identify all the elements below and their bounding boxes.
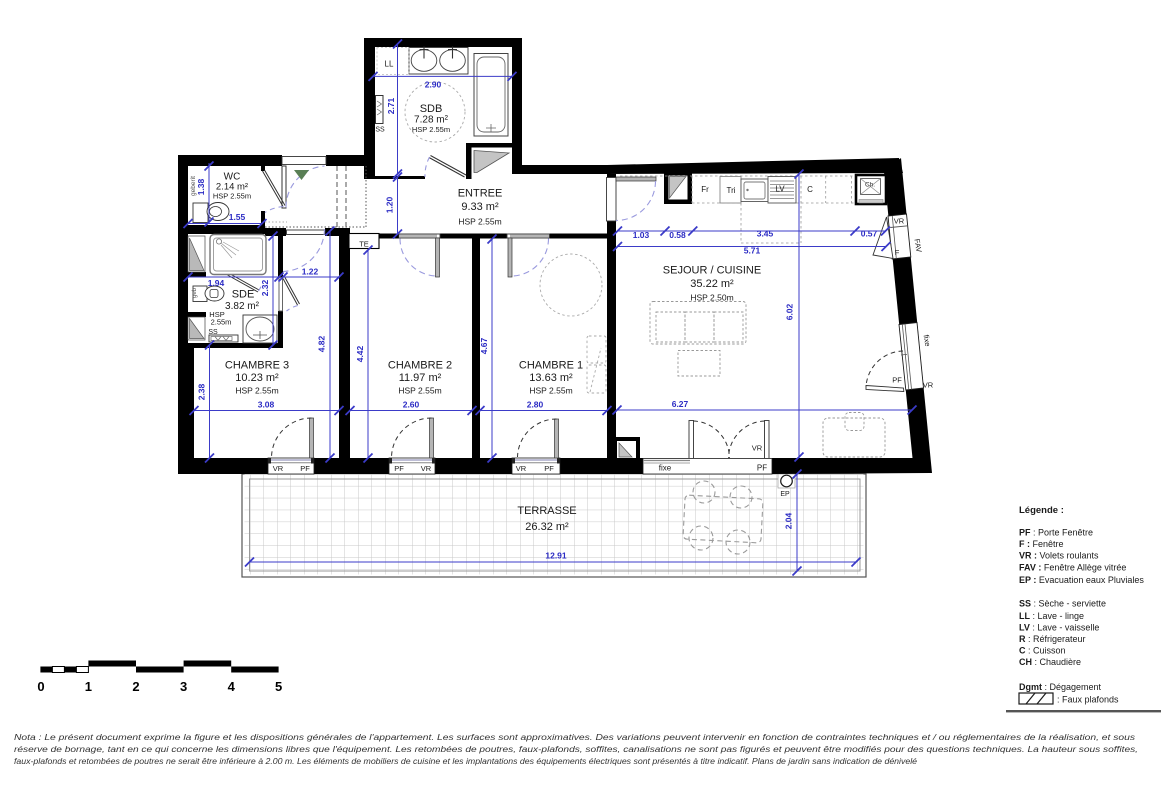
svg-text:2.60: 2.60 [403, 400, 420, 410]
svg-text:SDB: SDB [420, 103, 443, 115]
svg-text:FAV : Fenêtre Allège vitrée: FAV : Fenêtre Allège vitrée [1019, 563, 1126, 573]
svg-text:TE: TE [359, 240, 369, 249]
svg-text:HSP 2.55m: HSP 2.55m [529, 386, 572, 396]
svg-text:C: C [807, 185, 813, 194]
svg-text:Ch.: Ch. [865, 182, 875, 189]
svg-text:SS : Sèche - serviette: SS : Sèche - serviette [1019, 599, 1106, 609]
svg-text:SEJOUR / CUISINE: SEJOUR / CUISINE [663, 265, 761, 277]
svg-text:3.08: 3.08 [258, 400, 275, 410]
svg-text:F: F [895, 248, 900, 257]
svg-text:4.67: 4.67 [479, 337, 489, 354]
svg-text:2.71: 2.71 [386, 97, 396, 114]
svg-text:: Faux plafonds: : Faux plafonds [1057, 695, 1119, 705]
svg-text:HSP 2.55m: HSP 2.55m [398, 386, 441, 396]
svg-text:HSP 2.55m: HSP 2.55m [458, 217, 501, 227]
svg-text:SS: SS [375, 127, 385, 134]
svg-text:10.23 m²: 10.23 m² [235, 372, 279, 384]
svg-text:3.82 m²: 3.82 m² [225, 301, 260, 312]
svg-text:LL: LL [385, 60, 394, 69]
svg-text:PF: PF [544, 464, 554, 473]
svg-text:Dgmt : Dégagement: Dgmt : Dégagement [1019, 682, 1102, 692]
svg-text:4.82: 4.82 [317, 335, 327, 352]
svg-text:2.90: 2.90 [425, 80, 442, 90]
svg-text:F : Fenêtre: F : Fenêtre [1019, 539, 1064, 549]
svg-text:HSP 2.55m: HSP 2.55m [235, 386, 278, 396]
svg-text:SS: SS [208, 329, 218, 336]
svg-text:faux-plafonds et retombées de: faux-plafonds et retombées de poutres ne… [14, 756, 917, 766]
svg-text:EP : Evacuation eaux Pluviales: EP : Evacuation eaux Pluviales [1019, 575, 1144, 585]
svg-text:CHAMBRE 2: CHAMBRE 2 [388, 360, 452, 372]
svg-text:PF : Porte Fenêtre: PF : Porte Fenêtre [1019, 528, 1093, 538]
svg-text:Nota : Le présent document exp: Nota : Le présent document exprime la fi… [14, 732, 1136, 742]
svg-text:2.80: 2.80 [527, 400, 544, 410]
svg-text:1.55: 1.55 [229, 212, 246, 222]
svg-text:2.04: 2.04 [784, 512, 794, 529]
svg-text:LL : Lave - linge: LL : Lave - linge [1019, 611, 1084, 621]
svg-text:9.33 m²: 9.33 m² [461, 201, 499, 213]
svg-text:LV : Lave - vaisselle: LV : Lave - vaisselle [1019, 623, 1099, 633]
svg-text:C : Cuisson: C : Cuisson [1019, 646, 1066, 656]
svg-text:4: 4 [228, 679, 236, 694]
svg-text:CHAMBRE 3: CHAMBRE 3 [225, 360, 289, 372]
svg-text:3.45: 3.45 [757, 229, 774, 239]
svg-text:EP: EP [780, 491, 790, 498]
svg-text:VR: VR [923, 381, 934, 390]
svg-text:fixe: fixe [659, 464, 672, 473]
svg-text:1.38: 1.38 [196, 178, 206, 195]
svg-text:Légende :: Légende : [1019, 505, 1064, 516]
svg-text:3: 3 [180, 679, 187, 694]
svg-text:PF: PF [300, 464, 310, 473]
svg-text:CH : Chaudière: CH : Chaudière [1019, 657, 1081, 667]
svg-text:VR: VR [516, 464, 527, 473]
svg-text:4.42: 4.42 [355, 345, 365, 362]
svg-text:VR: VR [421, 464, 432, 473]
svg-text:PF: PF [394, 464, 404, 473]
svg-text:0.58: 0.58 [669, 230, 686, 240]
svg-text:réserve de bornage, tant en ce: réserve de bornage, tant en ce qui conce… [14, 744, 1138, 754]
svg-text:2.55m: 2.55m [211, 318, 232, 327]
svg-text:CHAMBRE 1: CHAMBRE 1 [519, 360, 583, 372]
svg-text:6.27: 6.27 [672, 399, 689, 409]
svg-text:TERRASSE: TERRASSE [517, 505, 576, 517]
svg-text:6.02: 6.02 [785, 303, 795, 320]
svg-text:12.91: 12.91 [545, 551, 567, 561]
svg-text:1.03: 1.03 [633, 230, 650, 240]
svg-text:SDE: SDE [232, 289, 255, 301]
svg-text:0.57: 0.57 [861, 229, 878, 239]
svg-text:LV: LV [775, 185, 785, 194]
svg-text:1.22: 1.22 [302, 267, 319, 277]
svg-text:ENTREE: ENTREE [458, 188, 503, 200]
svg-text:Fr: Fr [701, 185, 709, 194]
svg-text:geb: geb [192, 287, 198, 298]
svg-text:VR: VR [752, 444, 763, 453]
svg-text:11.97 m²: 11.97 m² [399, 372, 442, 384]
svg-text:HSP 2.55m: HSP 2.55m [412, 125, 450, 134]
svg-text:PF: PF [892, 376, 902, 385]
svg-text:HSP 2.50m: HSP 2.50m [690, 293, 733, 303]
svg-text:VR: VR [273, 464, 284, 473]
svg-text:HSP 2.55m: HSP 2.55m [213, 192, 251, 201]
svg-text:1.20: 1.20 [385, 196, 395, 213]
svg-text:VR: VR [894, 217, 905, 226]
svg-text:VR : Volets roulants: VR : Volets roulants [1019, 551, 1099, 561]
svg-text:1: 1 [85, 679, 92, 694]
svg-text:R : Réfrigerateur: R : Réfrigerateur [1019, 634, 1086, 644]
svg-text:2.38: 2.38 [197, 383, 207, 400]
svg-text:5.71: 5.71 [744, 246, 761, 256]
svg-text:PF: PF [757, 464, 767, 473]
svg-text:35.22 m²: 35.22 m² [690, 278, 734, 290]
svg-text:2.32: 2.32 [260, 279, 270, 296]
svg-text:Tri: Tri [726, 186, 735, 195]
svg-text:0: 0 [37, 679, 44, 694]
svg-text:7.28 m²: 7.28 m² [414, 115, 449, 126]
svg-text:13.63 m²: 13.63 m² [529, 372, 573, 384]
svg-text:1.94: 1.94 [208, 278, 225, 288]
svg-text:5: 5 [275, 679, 282, 694]
svg-text:2: 2 [132, 679, 139, 694]
svg-text:26.32 m²: 26.32 m² [525, 521, 569, 533]
